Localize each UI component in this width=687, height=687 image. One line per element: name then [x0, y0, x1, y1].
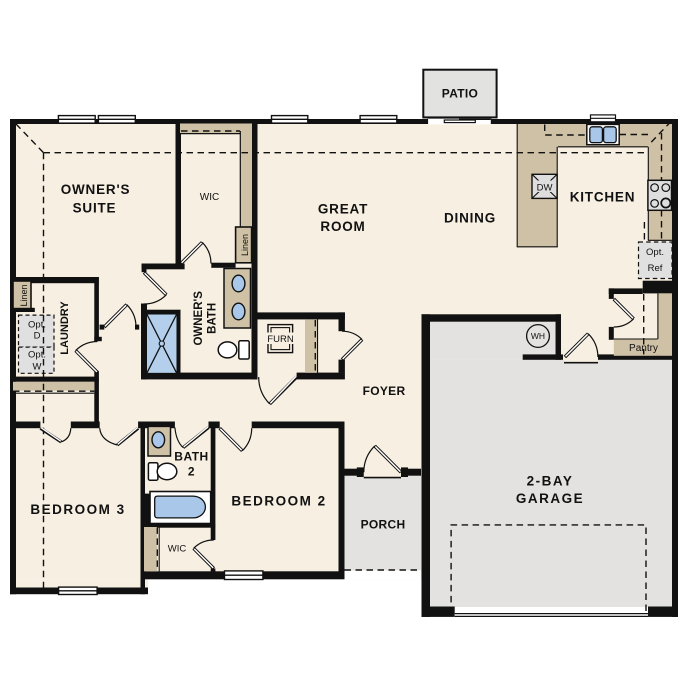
- svg-text:BATH: BATH: [174, 450, 208, 464]
- svg-text:PORCH: PORCH: [361, 518, 406, 532]
- svg-text:WH: WH: [531, 331, 545, 341]
- svg-text:2-BAY: 2-BAY: [527, 474, 574, 489]
- svg-text:DINING: DINING: [444, 210, 496, 225]
- svg-text:ROOM: ROOM: [320, 219, 365, 234]
- svg-text:Ref: Ref: [648, 263, 663, 274]
- svg-text:FURN: FURN: [267, 334, 294, 345]
- svg-text:OWNER'S: OWNER'S: [61, 182, 131, 197]
- svg-text:DW: DW: [537, 183, 553, 194]
- svg-text:BEDROOM 2: BEDROOM 2: [231, 494, 326, 509]
- svg-text:PATIO: PATIO: [442, 87, 478, 101]
- svg-text:OWNER'S: OWNER'S: [193, 291, 205, 346]
- svg-text:Linen: Linen: [240, 234, 250, 256]
- svg-text:BEDROOM 3: BEDROOM 3: [30, 502, 125, 517]
- svg-text:Opt.: Opt.: [646, 247, 664, 258]
- svg-text:2: 2: [188, 464, 195, 478]
- svg-text:FOYER: FOYER: [363, 384, 406, 398]
- svg-text:BATH: BATH: [207, 303, 219, 334]
- svg-text:GARAGE: GARAGE: [516, 491, 584, 506]
- svg-text:GREAT: GREAT: [318, 201, 368, 216]
- svg-text:WIC: WIC: [168, 544, 187, 555]
- svg-text:Linen: Linen: [19, 284, 29, 306]
- svg-text:WIC: WIC: [200, 192, 219, 203]
- svg-text:SUITE: SUITE: [73, 200, 117, 215]
- svg-text:W: W: [33, 362, 42, 373]
- svg-text:LAUNDRY: LAUNDRY: [59, 301, 71, 355]
- svg-text:D: D: [34, 331, 41, 342]
- svg-text:KITCHEN: KITCHEN: [570, 190, 636, 205]
- svg-text:Pantry: Pantry: [629, 343, 658, 354]
